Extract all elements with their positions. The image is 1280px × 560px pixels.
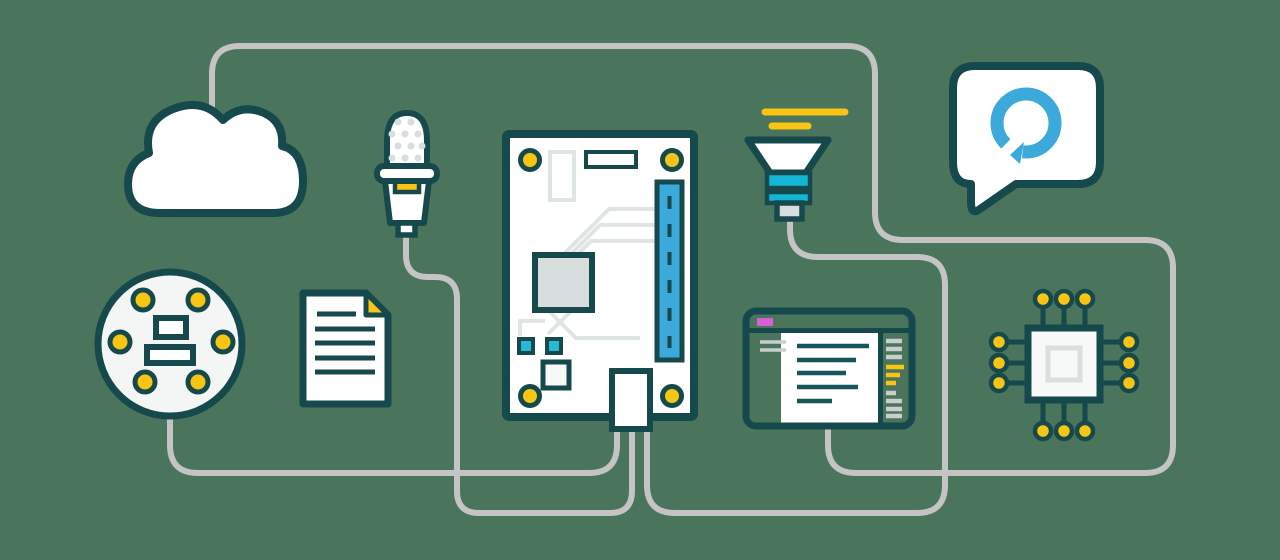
microphone-icon (377, 113, 437, 235)
circuit-board-icon (506, 134, 694, 429)
sound-wave-lines (765, 112, 845, 126)
chip-body (1028, 328, 1100, 400)
disc-component-small (156, 318, 186, 337)
mic-array-disc-icon (98, 272, 242, 416)
editor-minimap-lines (886, 341, 904, 416)
board-component-rect (586, 152, 636, 167)
board-component-cyan-1 (519, 339, 533, 353)
speaker-horn-icon (748, 112, 845, 219)
editor-tab-accent (757, 318, 773, 326)
code-editor-window-icon (746, 311, 912, 426)
iot-diagram (0, 0, 1280, 560)
document-folded-corner (366, 293, 388, 315)
board-component-square (543, 362, 569, 388)
cpu-chip-icon (991, 291, 1137, 439)
usb-connector (612, 371, 650, 429)
alexa-speech-bubble-icon (953, 66, 1100, 211)
soc-chip (535, 255, 592, 310)
document-icon (303, 293, 388, 404)
illustration-canvas (0, 0, 1280, 560)
cloud-icon (128, 105, 303, 213)
board-component-cyan-2 (547, 339, 561, 353)
disc-component-wide (147, 347, 193, 363)
